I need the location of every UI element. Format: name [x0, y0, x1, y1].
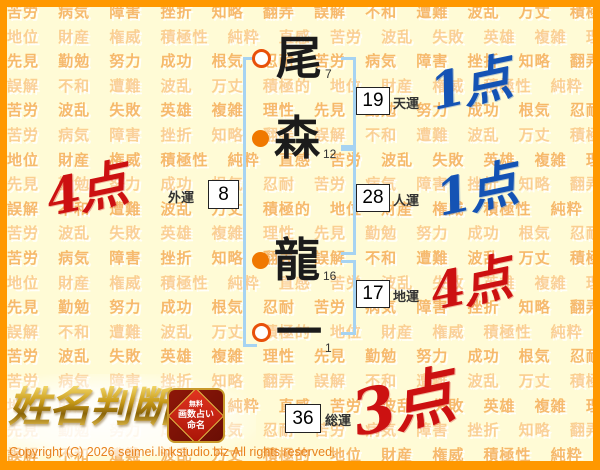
name-character: 一	[276, 306, 322, 358]
name-character-row: 龍16	[252, 234, 336, 286]
tenun-score: 1点	[426, 52, 513, 117]
site-logo[interactable]: 姓名判断	[8, 386, 172, 428]
badge-line-muryo: 無料	[189, 401, 203, 409]
jinun-label: 人運	[393, 190, 419, 209]
tenun-bracket	[341, 57, 356, 148]
name-character-row: 一1	[252, 306, 332, 358]
stroke-count: 7	[325, 67, 332, 81]
chiun-bracket	[341, 260, 356, 335]
name-character-row: 尾7	[252, 32, 332, 84]
souun-score: 3点	[347, 364, 457, 445]
name-character: 尾	[276, 32, 322, 84]
jinun-bracket	[341, 148, 356, 255]
tenun-label: 天運	[393, 93, 419, 112]
name-character-row: 森12	[252, 112, 336, 164]
free-kazu-uranai-badge[interactable]: 無料 画数占い 命名	[167, 388, 225, 443]
souun-label: 総運	[325, 410, 351, 429]
chiun-score: 4点	[426, 252, 513, 317]
badge-line-kazuuranai: 画数占い	[178, 409, 214, 420]
name-character: 龍	[274, 234, 320, 286]
jinun-value-box: 28	[356, 184, 390, 212]
stroke-count: 1	[325, 341, 332, 355]
background-word-row: 苦労 病気 障害 挫折 知略 翻弄 誤解 不和 遭難 波乱 万丈 積極的 地位	[7, 1, 600, 25]
gaiun-label: 外運	[168, 187, 194, 206]
souun-value-box: 36	[285, 404, 321, 433]
open-circle-marker	[252, 49, 271, 68]
gaiun-value-box: 8	[208, 180, 239, 209]
chiun-value-box: 17	[356, 280, 390, 308]
chiun-label: 地運	[393, 286, 419, 305]
gaiun-score: 4点	[42, 158, 129, 223]
stroke-count: 16	[323, 269, 336, 283]
filled-circle-marker	[252, 252, 269, 269]
jinun-score: 1点	[432, 158, 519, 223]
name-character: 森	[274, 112, 320, 164]
badge-text: 無料 画数占い 命名	[169, 390, 223, 441]
badge-line-meimei: 命名	[187, 420, 205, 431]
seimei-handan-result-page: 苦労 病気 障害 挫折 知略 翻弄 誤解 不和 遭難 波乱 万丈 積極的 地位地…	[0, 0, 600, 470]
gaiun-bracket	[243, 57, 257, 347]
tenun-value-box: 19	[356, 87, 390, 115]
copyright-text: Copyright (C) 2026 seimei.linkstudio.biz…	[9, 445, 336, 459]
filled-circle-marker	[252, 130, 269, 147]
open-circle-marker	[252, 323, 271, 342]
stroke-count: 12	[323, 147, 336, 161]
